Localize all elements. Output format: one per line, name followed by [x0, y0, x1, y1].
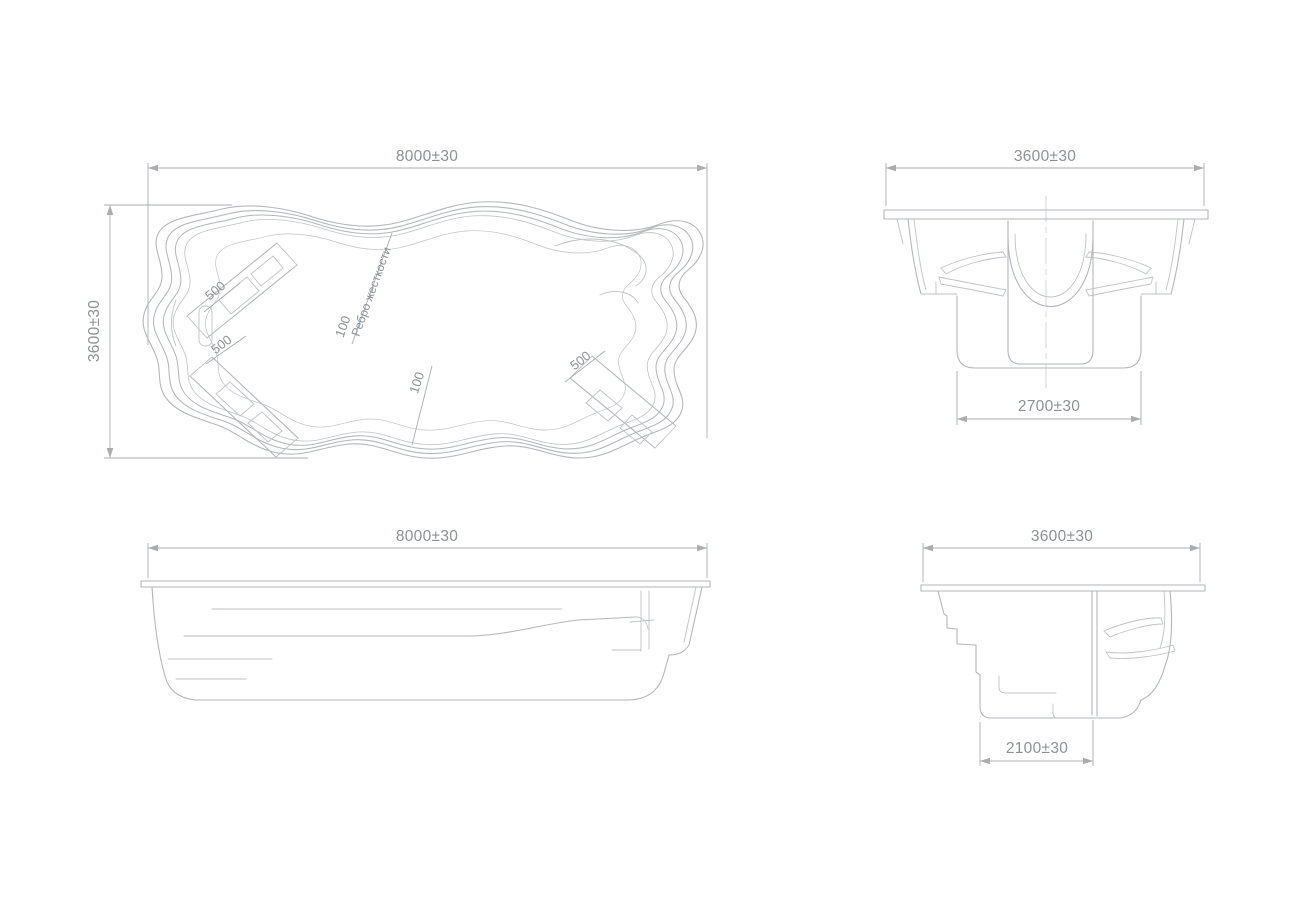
shelf-steps-bottom-left	[190, 357, 298, 457]
shelf-width-label: 500	[202, 278, 228, 303]
shelf-rail	[190, 376, 276, 457]
arrowhead	[923, 545, 933, 552]
right-swirl-detail	[600, 292, 638, 303]
pond-contour-line	[173, 216, 673, 445]
plan-width-dimension-label: 8000±30	[396, 148, 458, 165]
shelf-rail	[187, 243, 277, 316]
rim-edge	[921, 585, 1205, 591]
shelf-rail	[592, 356, 676, 426]
inner-step	[1053, 704, 1058, 718]
shelf-wing	[941, 252, 1006, 274]
shelf-wing	[939, 277, 1006, 296]
right-end-detail	[612, 591, 654, 651]
arrowhead	[697, 165, 707, 172]
center-channel	[1008, 221, 1093, 364]
shelf-wing	[1104, 618, 1163, 637]
shelf-rung	[187, 316, 207, 338]
end-bottom-dimension-label: 2100±30	[1006, 740, 1068, 757]
arrowhead	[107, 448, 114, 458]
body-outline	[152, 587, 669, 700]
arrowhead	[697, 545, 707, 552]
shelf-steps-bottom-right	[570, 356, 676, 448]
arrowhead	[957, 416, 967, 423]
wall-line	[914, 219, 926, 290]
wall-stub	[897, 219, 903, 244]
channel-dip-inner	[1015, 234, 1086, 297]
wall-stub	[1189, 219, 1195, 244]
left-wall-detail	[172, 300, 177, 346]
floor-slope-line	[184, 617, 636, 636]
side-view: 8000±30	[141, 528, 710, 700]
arrowhead	[1083, 758, 1093, 765]
front-section-view: 3600±30 2700±30	[884, 148, 1208, 425]
front-bottom-dimension-label: 2700±30	[1018, 398, 1080, 415]
shelf-rung	[190, 357, 212, 376]
arrowhead	[1194, 165, 1204, 172]
shelf-rung	[655, 426, 676, 448]
plan-height-dimension-label: 3600±30	[86, 300, 103, 362]
section-cut-line	[1092, 591, 1097, 716]
front-width-dimension-label: 3600±30	[1014, 148, 1076, 165]
arrowhead	[148, 545, 158, 552]
shelf-wing	[1086, 277, 1153, 296]
end-section-view: 3600±30 2100±30	[921, 528, 1205, 766]
shelf-pad	[216, 382, 254, 416]
arrowhead	[980, 758, 990, 765]
arrowhead	[886, 165, 896, 172]
rim-edge	[141, 581, 710, 587]
shelf-wing	[1106, 645, 1175, 659]
drawing-sheet: 8000±30 3600±30 500	[0, 0, 1300, 900]
pond-contour-line	[163, 211, 683, 449]
right-swirl-detail	[555, 239, 646, 286]
pond-contour-lines	[143, 202, 703, 458]
arrowhead	[148, 165, 158, 172]
right-wall	[1141, 591, 1172, 700]
pond-technical-drawing: 8000±30 3600±30 500	[0, 0, 1300, 900]
shelf-rail	[570, 378, 655, 448]
side-width-dimension-label: 8000±30	[396, 528, 458, 545]
arrowhead	[107, 205, 114, 215]
right-end-detail	[636, 617, 648, 629]
right-wall-inner	[1160, 591, 1165, 648]
arrowhead	[1131, 416, 1141, 423]
plan-view: 8000±30 3600±30 500	[86, 148, 707, 458]
shelf-width-label: 500	[567, 348, 593, 373]
right-wall	[669, 587, 702, 655]
shelf-rung	[277, 243, 297, 265]
shelf-pad	[248, 412, 282, 442]
shelf-wing	[1086, 252, 1151, 274]
end-width-dimension-label: 3600±30	[1031, 528, 1093, 545]
rib-thickness-label: 100	[406, 370, 427, 395]
arrowhead	[1190, 545, 1200, 552]
shelf-rail	[212, 357, 298, 438]
stiffener-rib-label: Ребро жесткости	[349, 245, 394, 338]
inner-step	[999, 676, 1056, 693]
stepped-profile	[938, 591, 1141, 718]
right-wall-inner	[684, 587, 696, 642]
wall-line	[1166, 219, 1178, 290]
